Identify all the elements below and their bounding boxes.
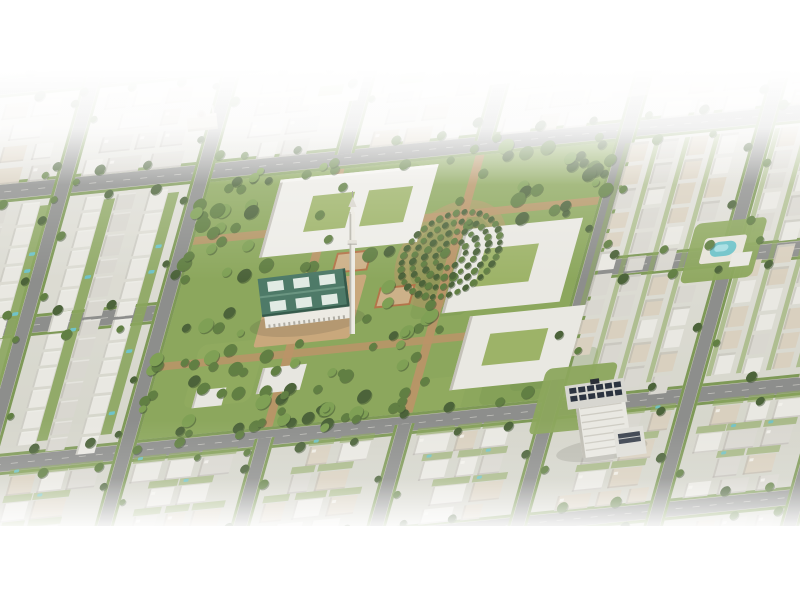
bottom-white-band (0, 526, 800, 600)
aerial-masterplan-figure: Aerial 3D rendering of a master-planned … (0, 0, 800, 600)
aerial-masterplan-svg (0, 0, 800, 600)
aerial-scene (0, 0, 800, 600)
top-white-band (0, 0, 800, 70)
